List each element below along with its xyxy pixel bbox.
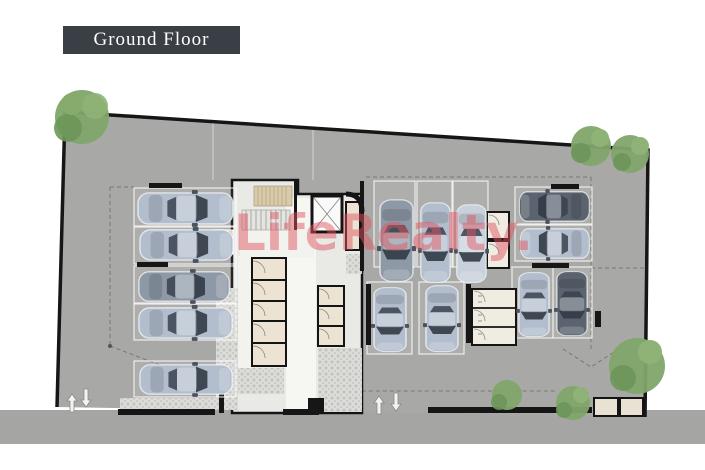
tree (609, 338, 665, 394)
floor-plan-page: Ground Floor LifeRealty. (0, 0, 705, 470)
tree (556, 386, 590, 420)
car (377, 200, 416, 281)
car (139, 269, 229, 304)
car (139, 305, 232, 341)
car (418, 203, 453, 283)
elevator (312, 196, 342, 232)
car (520, 226, 589, 261)
floor-title-label: Ground Floor (94, 29, 210, 51)
tree (611, 135, 649, 173)
storage-rooms-left (252, 258, 286, 366)
floor-title: Ground Floor (63, 26, 240, 54)
corridor (240, 228, 314, 258)
car (519, 189, 589, 224)
utility-rooms (594, 398, 643, 416)
car (454, 205, 489, 283)
cobble-paving (318, 348, 362, 412)
car (423, 286, 461, 352)
car (140, 362, 232, 397)
corridor (238, 256, 252, 368)
storage-rooms-right (318, 286, 344, 346)
car (140, 227, 233, 263)
car (138, 190, 233, 227)
cobble-paving (120, 398, 217, 410)
tree (571, 126, 611, 166)
cobble-paving (346, 254, 362, 274)
room (346, 202, 360, 250)
car (371, 288, 409, 352)
car (516, 273, 552, 337)
tree (54, 90, 109, 144)
cobble-paving (237, 368, 284, 394)
site-plan-drawing (0, 0, 705, 470)
car (554, 272, 590, 336)
